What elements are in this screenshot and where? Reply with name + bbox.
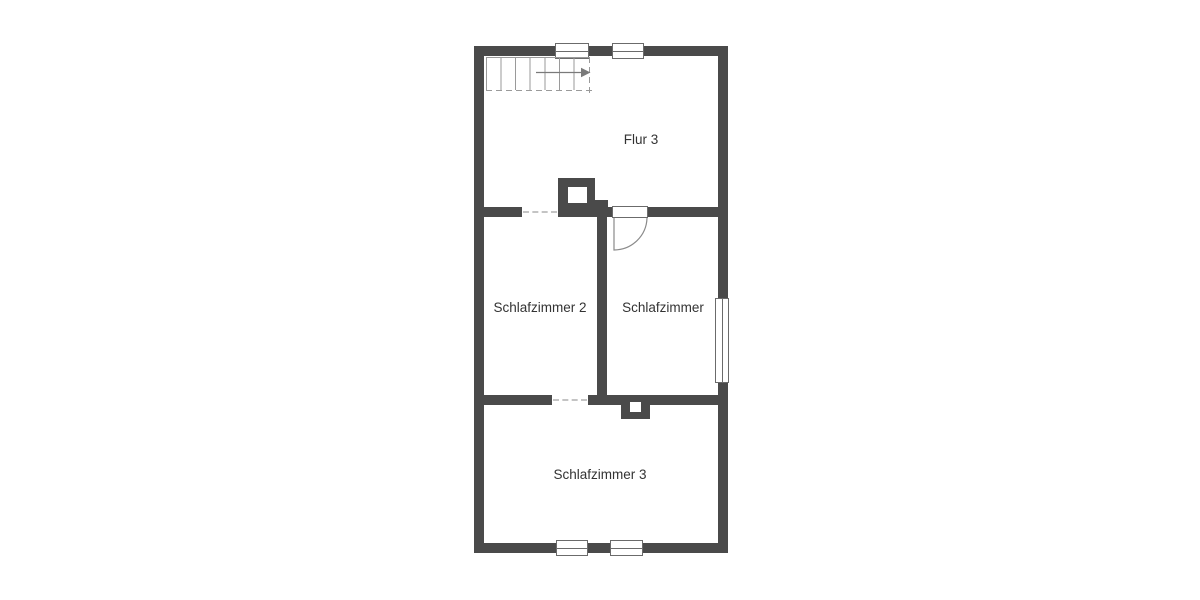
wall-bottom-mid-segment	[588, 543, 610, 553]
wall-interior-a-left	[484, 207, 522, 217]
window-icon-top-2	[612, 43, 644, 59]
window-icon-top-1	[555, 43, 589, 59]
window-pane-line	[556, 51, 588, 52]
window-icon-bottom-2	[610, 540, 643, 556]
chimney-upper-flue	[568, 187, 587, 203]
window-pane-line	[557, 548, 587, 549]
stairs-icon	[486, 57, 592, 93]
wall-bottom-left-segment	[474, 543, 556, 553]
door-swing-arc	[614, 218, 647, 250]
room-label-schlafzimmer-3: Schlafzimmer 3	[520, 467, 680, 482]
opening-dash-line	[523, 211, 557, 213]
wall-top-right-segment	[644, 46, 728, 56]
wall-top-mid-segment	[589, 46, 612, 56]
wall-bottom-right-segment	[643, 543, 728, 553]
stairs-direction-arrow	[536, 68, 591, 77]
window-pane-line	[611, 548, 642, 549]
wall-interior-a-right	[648, 207, 718, 217]
wall-opening-lower	[552, 395, 588, 405]
chimney-upper-extension	[595, 200, 608, 217]
room-label-schlafzimmer: Schlafzimmer	[583, 300, 743, 315]
wall-opening-upper	[522, 207, 558, 217]
wall-right-lower	[718, 383, 728, 553]
door-leaf	[612, 206, 648, 218]
wall-right-upper	[718, 46, 728, 298]
chimney-lower-flue	[630, 402, 641, 412]
wall-top-left-segment	[474, 46, 555, 56]
opening-dash-line	[553, 399, 587, 401]
wall-interior-c-right	[588, 395, 718, 405]
wall-interior-c-left	[484, 395, 552, 405]
window-icon-bottom-1	[556, 540, 588, 556]
floorplan-canvas: Flur 3 Schlafzimmer 2 Schlafzimmer Schla…	[0, 0, 1200, 600]
room-label-flur-3: Flur 3	[561, 132, 721, 147]
window-pane-line	[613, 51, 643, 52]
